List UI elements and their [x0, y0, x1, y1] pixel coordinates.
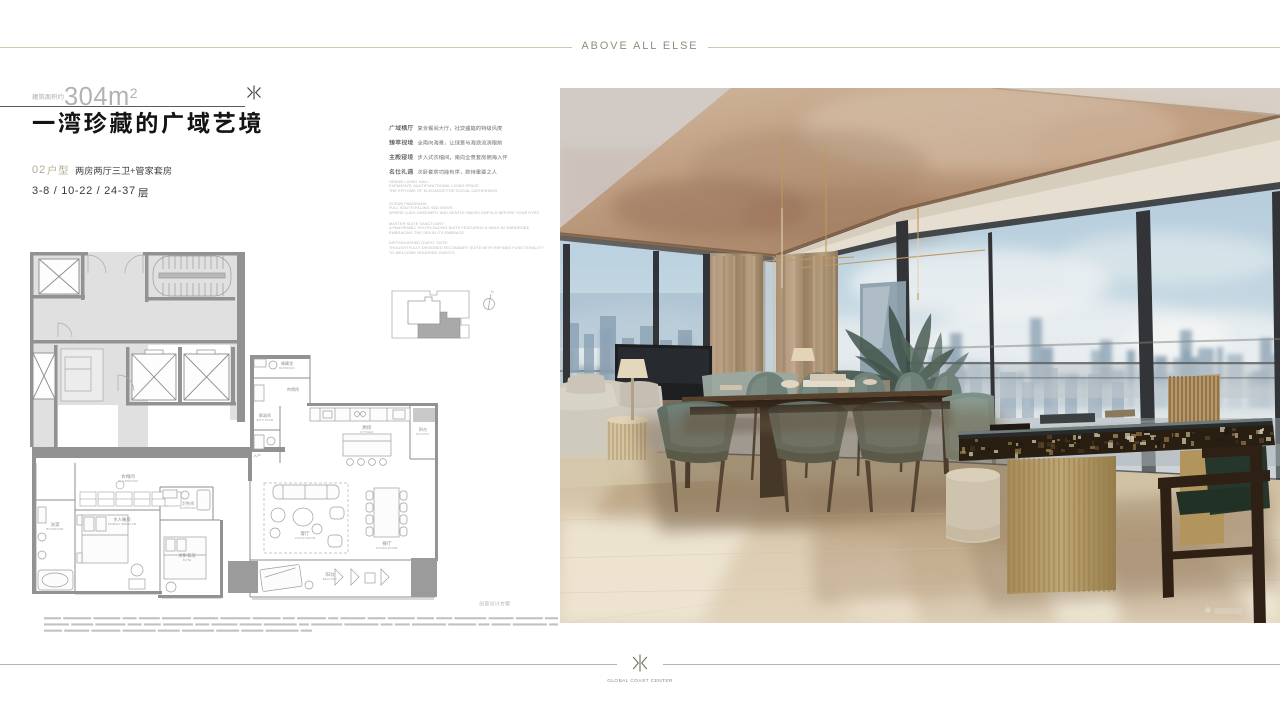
svg-text:N: N: [491, 290, 494, 294]
svg-text:BATHROOM: BATHROOM: [279, 367, 295, 370]
svg-text:BALCONY: BALCONY: [323, 577, 338, 581]
svg-text:KITCHEN: KITCHEN: [360, 430, 373, 434]
svg-text:LIVING ROOM: LIVING ROOM: [295, 536, 316, 540]
svg-text:BATHROOM: BATHROOM: [180, 507, 196, 510]
svg-text:PRIMARY BEDROOM: PRIMARY BEDROOM: [108, 523, 136, 526]
svg-text:SUITE: SUITE: [183, 559, 192, 562]
svg-text:BALCONY: BALCONY: [416, 433, 429, 436]
svg-text:CLOAKROOM: CLOAKROOM: [118, 479, 138, 483]
svg-text:BATH ROOM: BATH ROOM: [257, 419, 273, 422]
svg-text:BATHROOM: BATHROOM: [46, 527, 63, 531]
svg-text:DINING ROOM: DINING ROOM: [376, 546, 397, 550]
